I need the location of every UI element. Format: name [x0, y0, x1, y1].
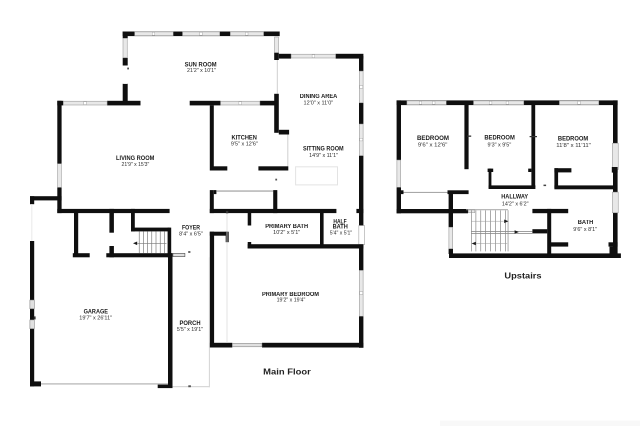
svg-text:5'4" x 5'1": 5'4" x 5'1" [330, 231, 353, 237]
svg-text:DINING AREA: DINING AREA [300, 94, 338, 100]
svg-text:BEDROOM: BEDROOM [417, 136, 449, 142]
svg-text:Main Floor: Main Floor [263, 367, 311, 377]
svg-text:21'2" x 10'1": 21'2" x 10'1" [187, 68, 216, 74]
svg-text:9'6" x 12'6": 9'6" x 12'6" [418, 143, 448, 149]
svg-text:BEDROOM: BEDROOM [484, 136, 515, 142]
svg-text:5'5" x 19'1": 5'5" x 19'1" [177, 327, 203, 333]
svg-text:9'5" x 12'6": 9'5" x 12'6" [231, 142, 258, 148]
svg-text:8'4" x 6'5": 8'4" x 6'5" [179, 231, 203, 237]
svg-text:HALLWAY: HALLWAY [501, 194, 528, 200]
svg-text:10'2" x 5'1": 10'2" x 5'1" [273, 230, 300, 236]
svg-text:BEDROOM: BEDROOM [558, 136, 588, 142]
svg-text:BATH: BATH [333, 224, 348, 230]
svg-text:14'9" x 11'1": 14'9" x 11'1" [309, 153, 338, 159]
svg-text:Upstairs: Upstairs [504, 270, 542, 280]
svg-text:21'9" x 15'3": 21'9" x 15'3" [122, 162, 150, 168]
svg-text:9'3" x 9'5": 9'3" x 9'5" [488, 143, 512, 149]
svg-text:19'7" x 26'11": 19'7" x 26'11" [79, 316, 112, 322]
svg-text:11'8" x 11'11": 11'8" x 11'11" [556, 143, 591, 149]
svg-text:12'0" x 11'0": 12'0" x 11'0" [304, 100, 334, 106]
svg-text:19'2" x 19'4": 19'2" x 19'4" [277, 297, 306, 303]
svg-text:SITTING ROOM: SITTING ROOM [303, 147, 344, 153]
svg-text:14'2" x 6'2": 14'2" x 6'2" [502, 201, 529, 207]
svg-text:9'6" x 8'1": 9'6" x 8'1" [573, 227, 597, 233]
svg-text:BATH: BATH [578, 220, 594, 226]
